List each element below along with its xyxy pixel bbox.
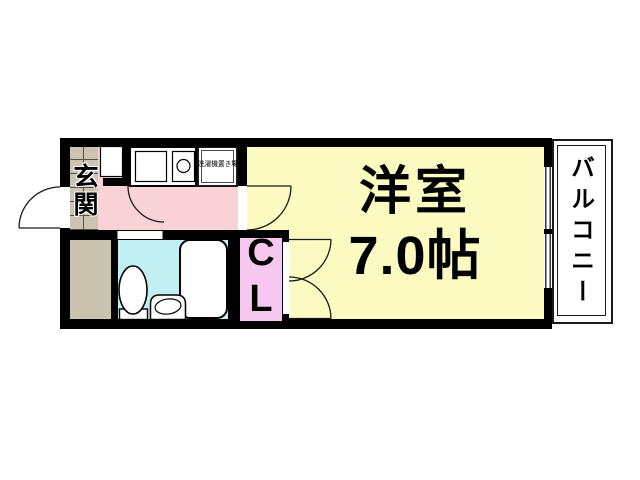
main-room-name: 洋室 [287,160,543,224]
bathroom-door [117,231,163,240]
window-glass [544,167,552,288]
wall-top [60,138,552,147]
closet-label: CL [240,238,282,318]
wall-mid-left [70,230,117,240]
wall-left-lower [60,228,70,329]
entrance-label: 玄関 [68,152,100,230]
balcony-label: バルコニー [554,148,606,316]
wall-right-lower [544,288,552,329]
wall-kitchen-room [238,138,247,186]
washer-label: 洗濯機置き場 [198,161,237,169]
main-room-size: 7.0帖 [287,224,543,288]
kitchen-area [98,146,238,230]
main-room-label: 洋室 7.0帖 [287,160,543,288]
bathroom-area [118,240,228,319]
floorplan: 玄関 洗濯機置き場 CL 洋室 7.0帖 バルコニー [0,0,640,480]
wall-right-upper [544,138,552,167]
wall-bath-left [111,240,118,319]
wall-bottom [60,319,552,329]
wall-mid-right [163,230,238,240]
storage-area [70,240,111,319]
entrance-door-arc [19,187,60,228]
